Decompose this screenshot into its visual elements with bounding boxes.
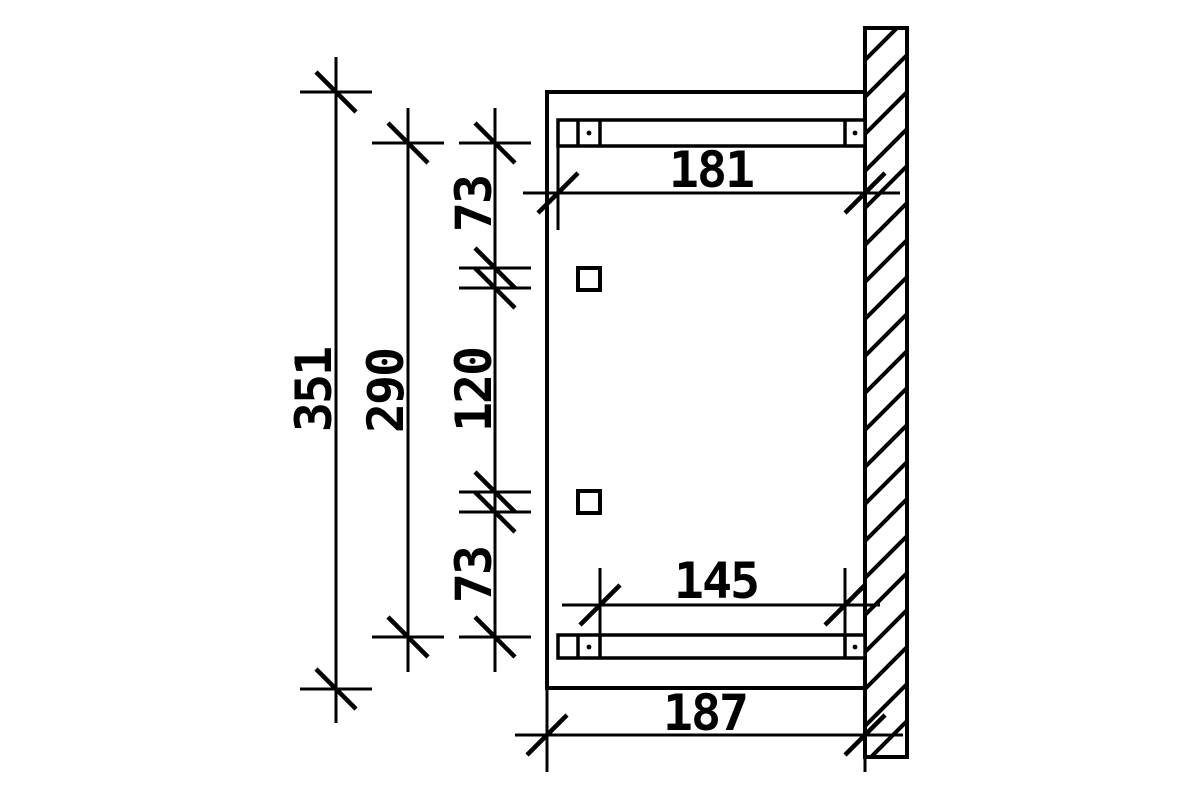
screw-dot-top-right (853, 131, 858, 136)
screw-dot-bottom-left (587, 645, 592, 650)
dim-label-120: 120 (445, 348, 503, 432)
dim-label-351: 351 (285, 348, 343, 432)
dim-label-73-upper: 73 (445, 176, 503, 232)
wall-hatch-area (865, 28, 907, 757)
dim-label-187: 187 (663, 684, 747, 742)
dim-label-145: 145 (674, 552, 758, 610)
bottom-beam (558, 635, 865, 658)
screw-dot-top-left (587, 131, 592, 136)
dim-label-181: 181 (669, 141, 753, 199)
screw-dot-bottom-right (853, 645, 858, 650)
dim-label-73-lower: 73 (445, 547, 503, 603)
rafter-section-lower (578, 491, 600, 513)
technical-drawing: 351 290 73 120 73 181 (0, 0, 1200, 800)
bottom-beam-body (558, 635, 865, 658)
drawing-canvas: 351 290 73 120 73 181 (0, 0, 1200, 800)
dim-label-290: 290 (357, 349, 415, 433)
wall-section (865, 28, 907, 772)
rafter-section-upper (578, 268, 600, 290)
